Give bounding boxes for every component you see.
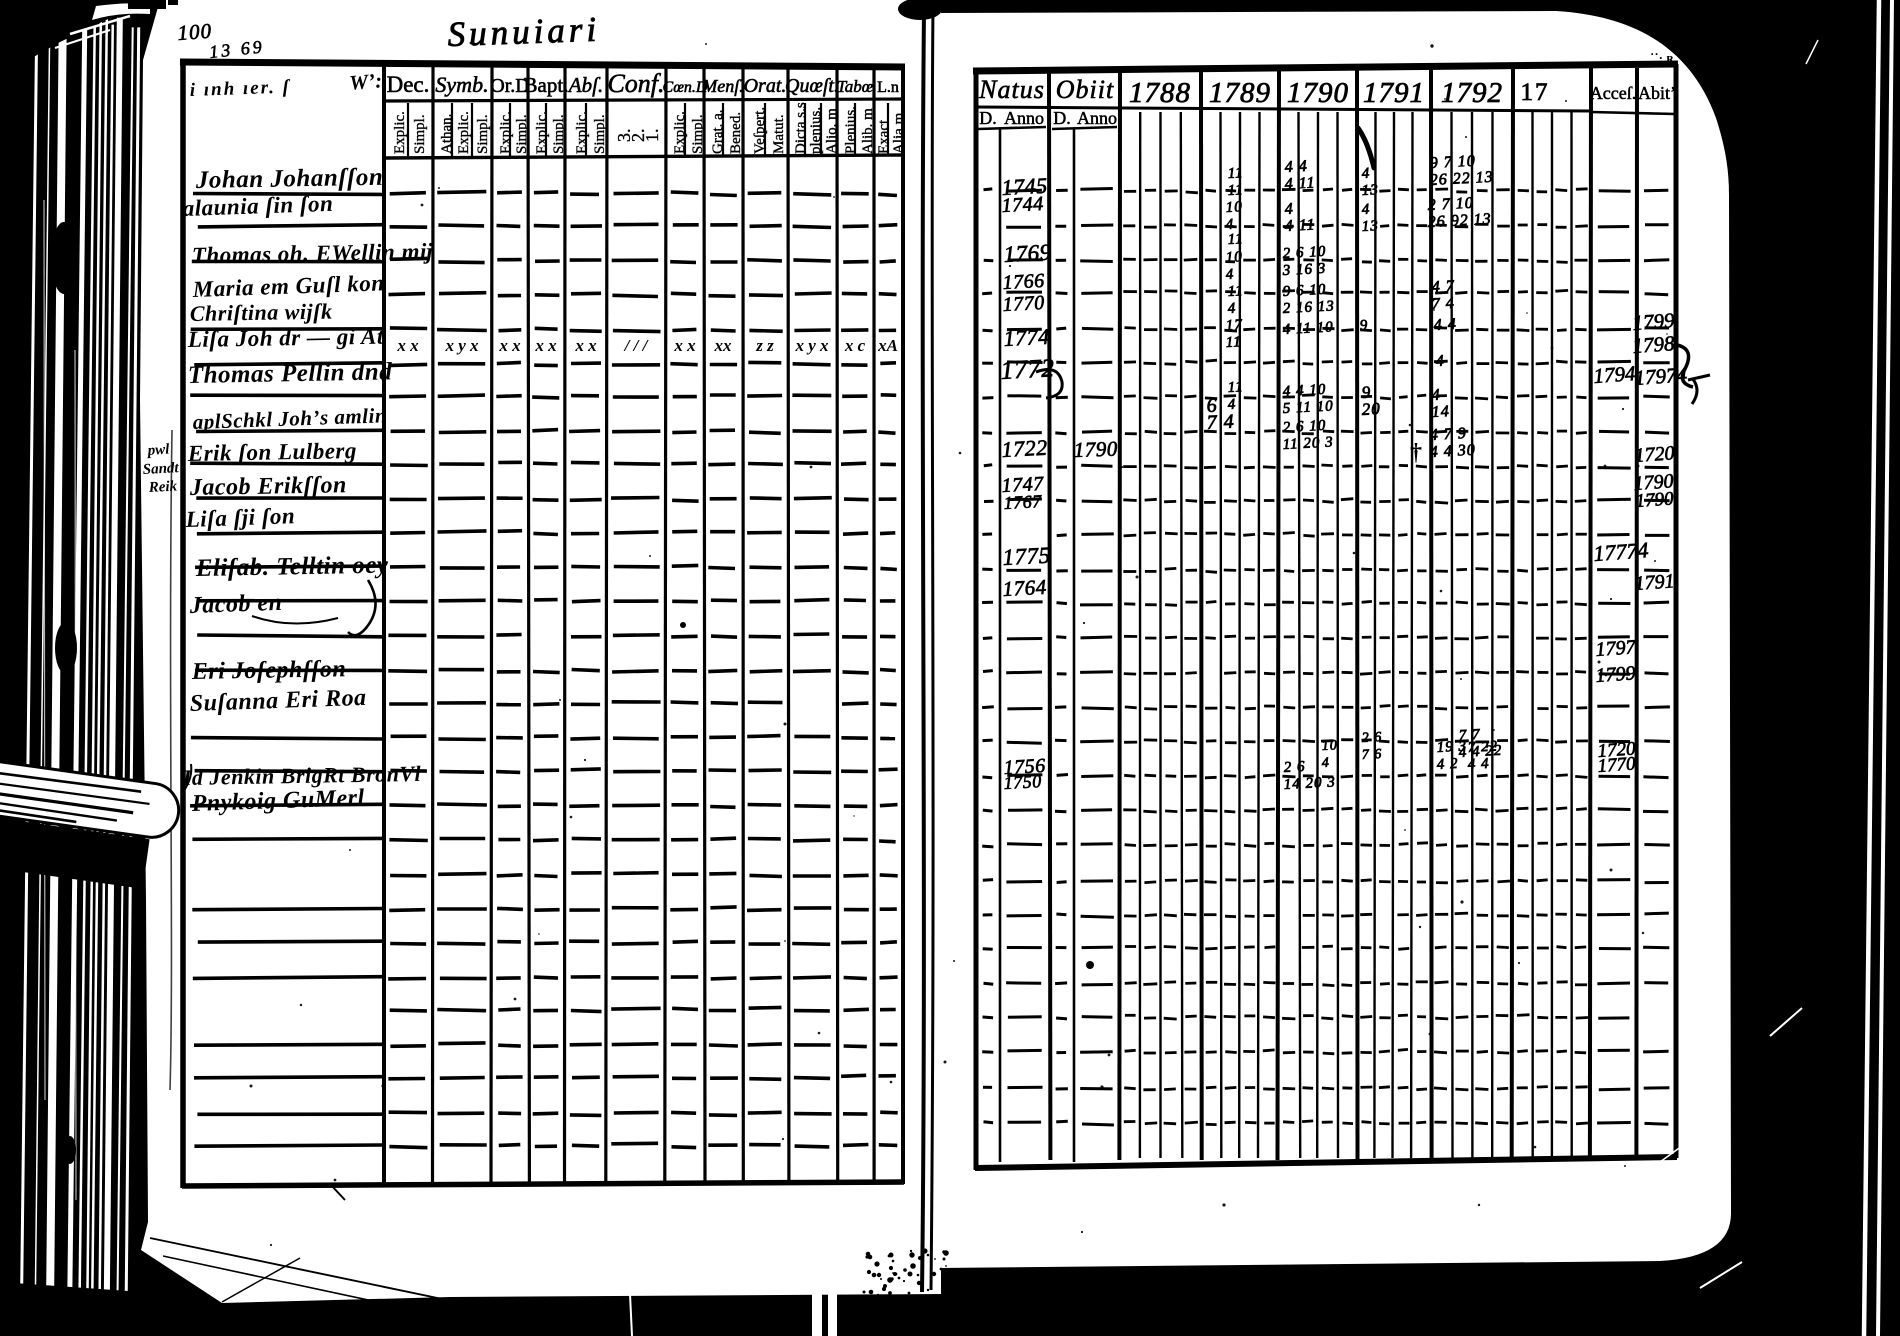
svg-text:14 20 3: 14 20 3 (1283, 774, 1336, 793)
svg-text:xx: xx (714, 336, 733, 355)
svg-text:Explic.: Explic. (392, 111, 408, 154)
svg-text:14: 14 (1431, 403, 1450, 421)
svg-text:Jacob Erikſſon: Jacob Erikſſon (189, 472, 347, 501)
svg-text:11: 11 (1227, 231, 1244, 248)
svg-text:Sunuiari: Sunuiari (447, 10, 601, 54)
svg-text:1797: 1797 (1595, 636, 1637, 661)
svg-text:11 20 3: 11 20 3 (1282, 434, 1334, 453)
svg-text:1788: 1788 (1129, 77, 1191, 109)
svg-text:Reik: Reik (147, 479, 178, 497)
svg-text:Erik ſon Lulberg: Erik ſon Lulberg (187, 438, 357, 466)
svg-text:pwl: pwl (145, 441, 171, 459)
svg-text:1767: 1767 (1003, 491, 1042, 513)
svg-text:Wʼ:: Wʼ: (348, 68, 383, 95)
svg-text:1770: 1770 (1002, 292, 1045, 316)
svg-text:1794: 1794 (1593, 361, 1637, 388)
svg-text:11: 11 (1227, 182, 1244, 199)
svg-text:Explic.: Explic. (534, 111, 550, 154)
svg-text:4: 4 (1321, 756, 1330, 771)
svg-text:Conf.: Conf. (607, 69, 664, 98)
svg-text:Simpl.: Simpl. (551, 114, 567, 154)
svg-text:4 4: 4 4 (1433, 316, 1457, 334)
svg-text:Simpl.: Simpl. (690, 114, 706, 154)
svg-text:Chriſtina wijſk: Chriſtina wijſk (190, 299, 333, 326)
svg-text:4 2: 4 2 (1436, 756, 1459, 773)
svg-text:Bened.: Bened. (728, 112, 744, 154)
svg-text:Tabœ: Tabœ (837, 77, 873, 96)
svg-text:4 11: 4 11 (1284, 216, 1316, 235)
svg-text:9 6 10: 9 6 10 (1282, 282, 1326, 300)
svg-text:Eliſab. Telltin oey: Eliſab. Telltin oey (195, 552, 389, 582)
svg-text:x y x: x y x (444, 336, 479, 355)
svg-text:x x: x x (574, 336, 597, 355)
svg-text:4 4 30: 4 4 30 (1429, 442, 1476, 461)
svg-text:x y x: x y x (794, 336, 829, 355)
svg-text:Symb.: Symb. (435, 72, 488, 97)
svg-text:†: † (1410, 440, 1422, 466)
svg-text:20: 20 (1361, 399, 1381, 419)
svg-text:26 22 13: 26 22 13 (1429, 169, 1494, 189)
svg-text:x c: x c (844, 336, 866, 355)
svg-text:x x: x x (673, 336, 696, 355)
svg-text:Veſpert.: Veſpert. (752, 107, 768, 154)
svg-text:17: 17 (1225, 317, 1243, 334)
svg-text:1790: 1790 (1635, 488, 1675, 512)
svg-text:4: 4 (1361, 166, 1370, 182)
svg-text:1764: 1764 (1002, 575, 1047, 601)
svg-text:Acceſ.: Acceſ. (1590, 83, 1636, 103)
svg-text:i ınh ıer. ſ: i ınh ıer. ſ (189, 76, 291, 101)
svg-text:Abitʼ: Abitʼ (1638, 83, 1676, 103)
svg-text:11: 11 (1227, 283, 1244, 300)
svg-text:Anno: Anno (1004, 108, 1044, 128)
svg-text:1722: 1722 (1001, 435, 1048, 462)
svg-text:4: 4 (1361, 202, 1370, 218)
svg-text:11: 11 (1225, 334, 1242, 351)
svg-text:1770: 1770 (1597, 753, 1637, 777)
svg-text:1790: 1790 (1073, 436, 1118, 462)
svg-text:4: 4 (1225, 267, 1234, 283)
svg-text:1.: 1. (642, 129, 662, 143)
svg-text:Anno: Anno (1077, 108, 1117, 128)
svg-text:Sandt: Sandt (142, 460, 179, 478)
svg-text:4: 4 (1431, 387, 1441, 404)
svg-text:Thomas Pellin dnd: Thomas Pellin dnd (188, 358, 393, 389)
svg-text:plenius.: plenius. (808, 107, 824, 154)
svg-text:Grat. a.: Grat. a. (710, 109, 726, 154)
svg-text:2 6: 2 6 (1361, 730, 1382, 746)
svg-text:/ / /: / / / (623, 336, 650, 355)
svg-text:Bapt.: Bapt. (524, 73, 569, 97)
svg-text:Matut.: Matut. (771, 114, 787, 154)
svg-text:z z: z z (755, 336, 774, 355)
svg-text:1799: 1799 (1595, 662, 1636, 687)
svg-text:1791: 1791 (1634, 570, 1675, 595)
svg-text:Liſa Joh dr — gi At: Liſa Joh dr — gi At (187, 324, 384, 352)
svg-text:5 11 10: 5 11 10 (1282, 398, 1334, 417)
svg-text:x x: x x (534, 336, 557, 355)
svg-text:1766: 1766 (1002, 270, 1045, 294)
svg-text:4: 4 (1435, 353, 1445, 370)
svg-text:Simpl.: Simpl. (592, 114, 608, 154)
svg-text:4: 4 (1284, 201, 1294, 218)
svg-text:Eri Joſephſſon: Eri Joſephſſon (191, 656, 347, 685)
svg-text:7 6: 7 6 (1361, 747, 1382, 763)
svg-text:Menſ.: Menſ. (701, 76, 743, 96)
svg-text:D.: D. (979, 108, 997, 128)
svg-text:Obiit: Obiit (1056, 75, 1114, 104)
svg-text:4: 4 (1225, 217, 1234, 233)
svg-text:Dec.: Dec. (387, 72, 430, 97)
svg-text:Johan Johanſſon: Johan Johanſſon (195, 164, 384, 194)
svg-text:˙˙· ʀ: ˙˙· ʀ (1650, 50, 1674, 65)
svg-text:Natus: Natus (978, 75, 1045, 104)
svg-text:1744: 1744 (1001, 193, 1044, 217)
svg-text:1769: 1769 (1003, 240, 1052, 267)
svg-text:Exact: Exact (876, 119, 892, 154)
svg-text:7 4: 7 4 (1431, 295, 1455, 313)
svg-text:Simpl.: Simpl. (514, 114, 530, 154)
svg-text:1774: 1774 (1003, 324, 1050, 351)
svg-text:x x: x x (396, 336, 419, 355)
svg-text:4 4 22: 4 4 22 (1458, 743, 1502, 761)
svg-text:11: 11 (1227, 165, 1244, 182)
svg-text:D.: D. (1053, 108, 1071, 128)
svg-text:4 7: 4 7 (1431, 278, 1455, 296)
svg-text:alaunia ſin ſon: alaunia ſin ſon (182, 191, 333, 221)
svg-text:17774: 17774 (1593, 537, 1650, 566)
svg-text:Alia.m: Alia.m (891, 112, 907, 154)
svg-text:Athan.: Athan. (439, 114, 455, 154)
svg-text:4 4: 4 4 (1284, 158, 1308, 176)
svg-text:17: 17 (1521, 79, 1550, 106)
svg-text:xA: xA (877, 336, 898, 355)
svg-text:Thomas oh. EWellin mĳ: Thomas oh. EWellin mĳ (192, 239, 434, 268)
svg-text:Simpl.: Simpl. (475, 114, 491, 154)
svg-text:7 7: 7 7 (1458, 727, 1481, 744)
svg-text:1791: 1791 (1363, 77, 1425, 109)
svg-text:4 4 10: 4 4 10 (1282, 382, 1326, 400)
svg-text:1790: 1790 (1287, 77, 1349, 109)
svg-text:4 11 10: 4 11 10 (1282, 319, 1334, 338)
svg-text:Explic.: Explic. (672, 111, 688, 154)
svg-text:2 6 10: 2 6 10 (1282, 418, 1326, 436)
svg-text:2 16 13: 2 16 13 (1282, 298, 1335, 317)
svg-text:13: 13 (1361, 182, 1379, 199)
svg-text:1750: 1750 (1003, 771, 1042, 793)
svg-text:Plenius.: Plenius. (843, 106, 859, 154)
svg-text:26 92 13: 26 92 13 (1427, 211, 1492, 231)
svg-text:Id Jenkin BrigRt BronVl: Id Jenkin BrigRt BronVl (182, 761, 422, 790)
svg-text:13: 13 (1361, 218, 1379, 235)
svg-text:Jacob en: Jacob en (188, 590, 283, 619)
svg-text:Quœſt.: Quœſt. (785, 75, 839, 97)
svg-text:Explic.: Explic. (456, 111, 472, 154)
svg-text:9: 9 (1359, 318, 1368, 334)
svg-text:Cœn.D: Cœn.D (663, 79, 708, 96)
svg-text:1792: 1792 (1441, 77, 1503, 109)
svg-text:1789: 1789 (1209, 77, 1271, 109)
svg-text:11: 11 (1227, 379, 1244, 396)
svg-text:10: 10 (1225, 199, 1243, 216)
svg-text:2 6 10: 2 6 10 (1282, 244, 1326, 262)
svg-text:1798: 1798 (1632, 331, 1676, 358)
svg-text:4: 4 (1227, 301, 1236, 317)
svg-text:Orat.: Orat. (744, 75, 787, 97)
svg-text:x x: x x (498, 336, 521, 355)
svg-text:Simpl.: Simpl. (412, 114, 428, 154)
svg-text:Dicta s.s: Dicta s.s (793, 102, 809, 154)
svg-text:1720: 1720 (1634, 442, 1675, 467)
svg-text:Alio. m: Alio. m (824, 108, 840, 154)
svg-text:10: 10 (1321, 738, 1338, 754)
svg-text:7 4: 7 4 (1206, 411, 1235, 434)
svg-text:Explic.: Explic. (498, 111, 514, 154)
svg-text:4 11: 4 11 (1284, 174, 1316, 193)
svg-text:3 16 3: 3 16 3 (1281, 261, 1326, 279)
svg-text:100: 100 (177, 19, 213, 45)
svg-text:1775: 1775 (1002, 543, 1051, 570)
svg-text:Abſ.: Abſ. (567, 73, 603, 97)
svg-text:Explic.: Explic. (574, 111, 590, 154)
svg-text:4 7 9: 4 7 9 (1429, 425, 1467, 444)
svg-text:10: 10 (1225, 249, 1243, 266)
svg-text:Alib. m: Alib. m (860, 108, 876, 154)
svg-text:Liſa ſji ſon: Liſa ſji ſon (184, 503, 295, 532)
svg-text:17974: 17974 (1634, 362, 1689, 390)
svg-text:2 6: 2 6 (1283, 759, 1306, 776)
svg-text:L.n: L.n (877, 79, 899, 96)
